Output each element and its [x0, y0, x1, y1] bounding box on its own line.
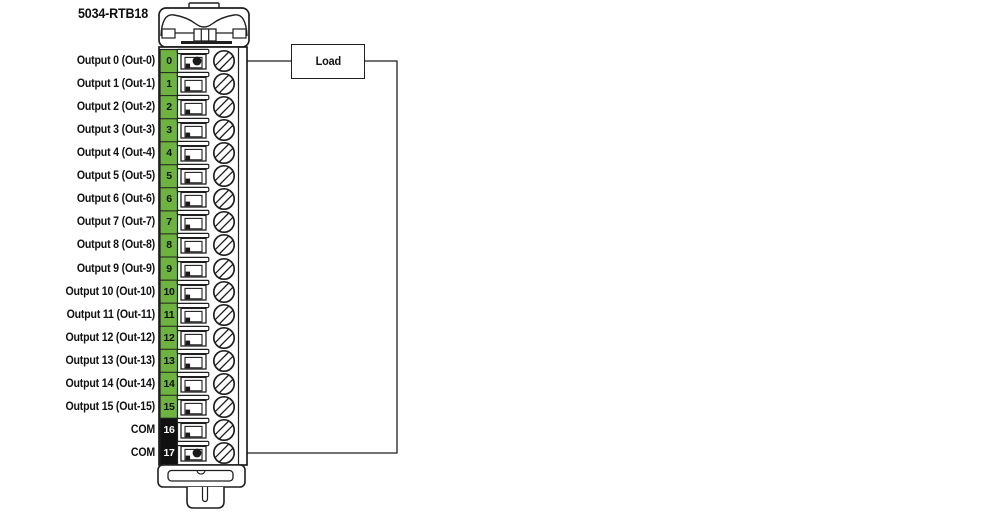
wiring-diagram-page: 5034-RTB18 Output 0 (Out-0) Output 1 (Ou…	[0, 0, 1000, 521]
row-label: Output 8 (Out-8)	[12, 237, 155, 253]
row-label: Output 3 (Out-3)	[12, 122, 155, 138]
row-label: Output 7 (Out-7)	[12, 214, 155, 230]
rtb-top-clip	[159, 3, 249, 47]
terminal-number: 4	[160, 146, 178, 160]
load-label: Load	[315, 56, 340, 68]
row-label: Output 5 (Out-5)	[12, 168, 155, 184]
terminal-number: 14	[160, 377, 178, 391]
row-label: Output 12 (Out-12)	[12, 330, 155, 346]
terminal-number: 0	[160, 54, 178, 68]
terminal-number: 6	[160, 192, 178, 206]
terminal-number: 13	[160, 354, 178, 368]
terminal-number: 9	[160, 262, 178, 276]
bottom-cap	[158, 465, 245, 487]
wire-connection-dot	[193, 57, 202, 66]
terminal-number: 8	[160, 238, 178, 252]
row-label: Output 13 (Out-13)	[12, 353, 155, 369]
terminal-number: 3	[160, 123, 178, 137]
terminal-number: 1	[160, 77, 178, 91]
load-box: Load	[291, 44, 365, 79]
din-tab	[187, 487, 224, 508]
terminal-number: 15	[160, 400, 178, 414]
terminal-number: 5	[160, 169, 178, 183]
terminal-number: 11	[160, 308, 178, 322]
row-label: Output 6 (Out-6)	[12, 191, 155, 207]
row-label: Output 4 (Out-4)	[12, 145, 155, 161]
row-label: COM	[12, 445, 155, 461]
terminal-number: 2	[160, 100, 178, 114]
row-label: Output 14 (Out-14)	[12, 376, 155, 392]
terminal-number: 12	[160, 331, 178, 345]
module-title: 5034-RTB18	[10, 6, 148, 22]
wire-connection-dot	[193, 449, 202, 458]
row-label: COM	[12, 422, 155, 438]
terminal-number: 10	[160, 285, 178, 299]
terminal-number: 17	[160, 446, 178, 460]
terminal-number: 16	[160, 423, 178, 437]
row-label: Output 0 (Out-0)	[12, 53, 155, 69]
row-label: Output 2 (Out-2)	[12, 99, 155, 115]
row-label: Output 15 (Out-15)	[12, 399, 155, 415]
terminal-number: 7	[160, 215, 178, 229]
row-label: Output 10 (Out-10)	[12, 284, 155, 300]
row-label: Output 9 (Out-9)	[12, 261, 155, 277]
row-label: Output 1 (Out-1)	[12, 76, 155, 92]
row-label: Output 11 (Out-11)	[12, 307, 155, 323]
